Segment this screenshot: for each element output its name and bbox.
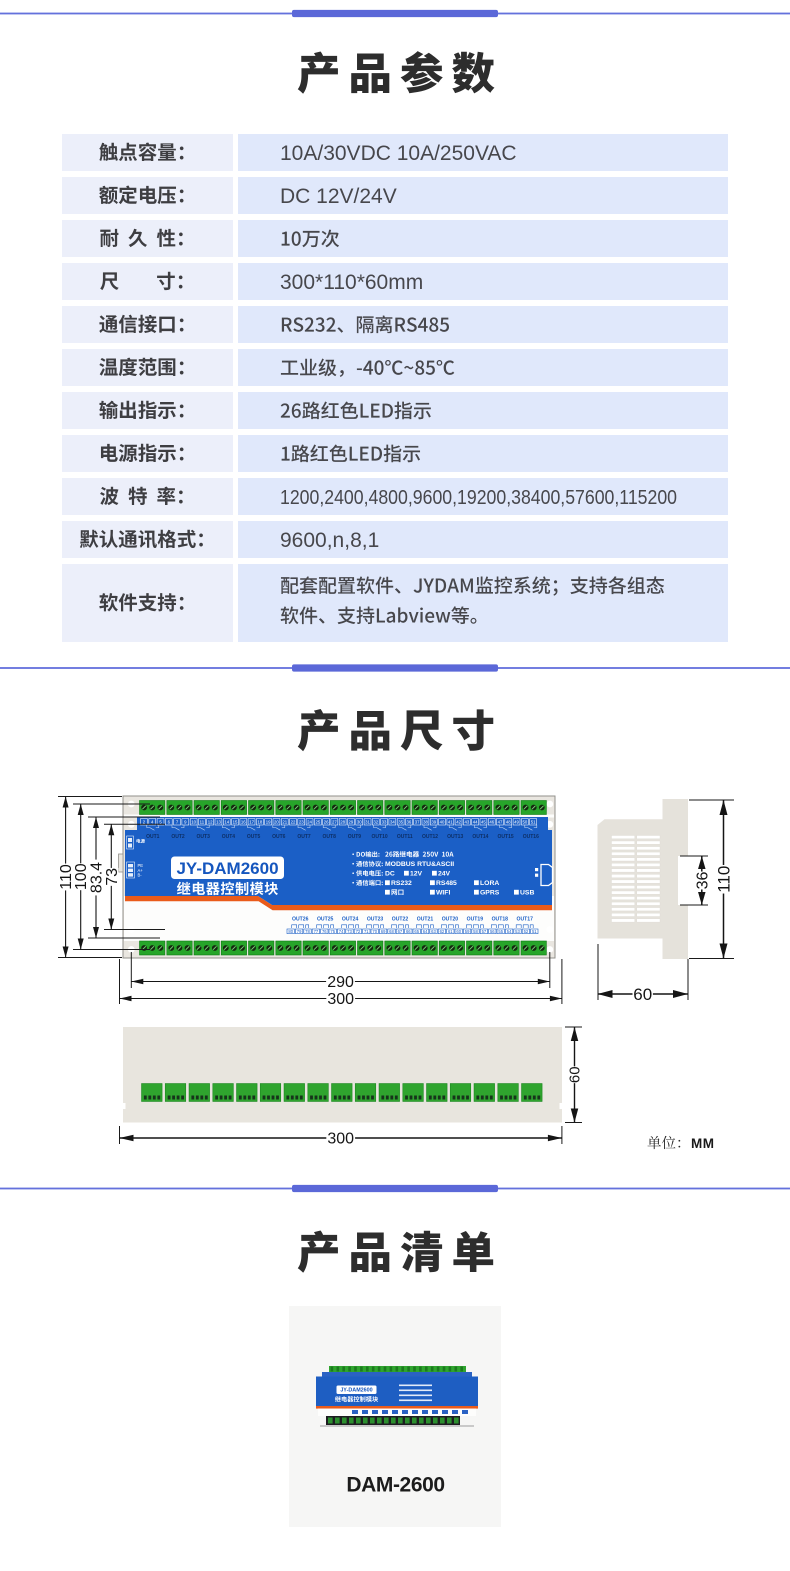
svg-text:40: 40 — [440, 820, 445, 825]
svg-text:13: 13 — [216, 820, 221, 825]
svg-text:OUT26: OUT26 — [292, 917, 309, 923]
svg-text:OUT20: OUT20 — [442, 917, 459, 923]
svg-text:OUT10: OUT10 — [372, 834, 388, 840]
svg-text:OUT17: OUT17 — [517, 917, 534, 923]
svg-text:OUT15: OUT15 — [498, 834, 514, 840]
svg-text:OUT6: OUT6 — [272, 834, 286, 840]
svg-text:58: 58 — [473, 929, 478, 934]
svg-text:67: 67 — [398, 929, 403, 934]
svg-text:OUT1: OUT1 — [146, 834, 160, 840]
svg-text:30: 30 — [357, 820, 362, 825]
svg-text:36: 36 — [407, 820, 412, 825]
svg-text:37: 37 — [415, 820, 420, 825]
svg-text:OUT21: OUT21 — [417, 917, 434, 923]
svg-text:77: 77 — [314, 929, 319, 934]
svg-text:DC: DC — [385, 871, 395, 878]
svg-text:300*110*60mm: 300*110*60mm — [280, 271, 423, 294]
svg-text:60: 60 — [567, 1066, 584, 1083]
svg-text:72: 72 — [356, 929, 361, 934]
svg-text:OUT23: OUT23 — [367, 917, 384, 923]
svg-text:OUT22: OUT22 — [392, 917, 409, 923]
svg-text:54: 54 — [507, 929, 512, 934]
svg-text:OUT12: OUT12 — [422, 834, 438, 840]
svg-text:61: 61 — [448, 929, 453, 934]
svg-text:47: 47 — [498, 820, 503, 825]
svg-text:OUT5: OUT5 — [247, 834, 261, 840]
svg-text:1200,2400,4800,9600,19200,3840: 1200,2400,4800,9600,19200,38400,57600,11… — [280, 487, 677, 509]
svg-text:43: 43 — [464, 820, 469, 825]
svg-text:44: 44 — [473, 820, 478, 825]
svg-text:B-: B- — [138, 872, 143, 877]
svg-text:OUT25: OUT25 — [317, 917, 334, 923]
svg-text:73: 73 — [347, 929, 352, 934]
svg-text:46: 46 — [489, 820, 494, 825]
svg-text:55: 55 — [498, 929, 503, 934]
svg-text:50: 50 — [522, 820, 527, 825]
svg-text:OUT16: OUT16 — [523, 834, 539, 840]
svg-text:63: 63 — [431, 929, 436, 934]
svg-text:45: 45 — [481, 820, 486, 825]
svg-text:OUT3: OUT3 — [197, 834, 211, 840]
svg-text:59: 59 — [465, 929, 470, 934]
svg-text:10A/30VDC 10A/250VAC: 10A/30VDC 10A/250VAC — [280, 142, 517, 165]
svg-text:32: 32 — [373, 820, 378, 825]
svg-text:33: 33 — [382, 820, 387, 825]
svg-text:OUT4: OUT4 — [222, 834, 236, 840]
svg-text:75: 75 — [330, 929, 335, 934]
svg-text:11: 11 — [200, 820, 205, 825]
svg-text:23: 23 — [299, 820, 304, 825]
svg-text:25: 25 — [315, 820, 320, 825]
svg-text:RS232: RS232 — [391, 880, 412, 887]
svg-text:64: 64 — [423, 929, 428, 934]
svg-text:29: 29 — [349, 820, 354, 825]
svg-text:OUT7: OUT7 — [297, 834, 311, 840]
svg-text:10: 10 — [191, 820, 196, 825]
svg-text:JY-DAM2600: JY-DAM2600 — [176, 859, 278, 878]
svg-text:9600,n,8,1: 9600,n,8,1 — [280, 529, 379, 552]
svg-text:38: 38 — [423, 820, 428, 825]
svg-text:15: 15 — [233, 820, 238, 825]
svg-text:20: 20 — [274, 820, 279, 825]
svg-text:68: 68 — [389, 929, 394, 934]
svg-text:OUT18: OUT18 — [492, 917, 509, 923]
svg-text:49: 49 — [514, 820, 519, 825]
svg-text:28: 28 — [340, 820, 345, 825]
svg-text:USB: USB — [520, 890, 534, 897]
svg-text:OUT13: OUT13 — [447, 834, 463, 840]
svg-text:GPRS: GPRS — [480, 890, 500, 897]
svg-text:52: 52 — [524, 929, 529, 934]
svg-text:70: 70 — [372, 929, 377, 934]
svg-text:MM: MM — [691, 1136, 715, 1151]
svg-text:78: 78 — [305, 929, 310, 934]
svg-text:51: 51 — [531, 820, 536, 825]
svg-text:65: 65 — [414, 929, 419, 934]
svg-text:53: 53 — [515, 929, 520, 934]
svg-text:48: 48 — [506, 820, 511, 825]
svg-text:OUT19: OUT19 — [467, 917, 484, 923]
svg-text:31: 31 — [365, 820, 370, 825]
svg-text:56: 56 — [490, 929, 495, 934]
svg-text:69: 69 — [381, 929, 386, 934]
svg-text:290: 290 — [327, 974, 354, 991]
svg-text:34: 34 — [390, 820, 395, 825]
svg-text:DAM-2600: DAM-2600 — [346, 1474, 444, 1497]
svg-text:MODBUS RTU&ASCII: MODBUS RTU&ASCII — [385, 861, 454, 868]
svg-text:110: 110 — [714, 866, 733, 893]
svg-text:66: 66 — [406, 929, 411, 934]
svg-text:62: 62 — [440, 929, 445, 934]
svg-text:79: 79 — [297, 929, 302, 934]
svg-text:35: 35 — [398, 820, 403, 825]
svg-text:OUT9: OUT9 — [348, 834, 362, 840]
svg-text:WIFI: WIFI — [436, 890, 450, 897]
svg-text:OUT11: OUT11 — [397, 834, 413, 840]
svg-text:19: 19 — [266, 820, 271, 825]
svg-text:OUT24: OUT24 — [342, 917, 359, 923]
svg-text:24: 24 — [307, 820, 312, 825]
svg-text:18: 18 — [257, 820, 262, 825]
svg-text:21: 21 — [282, 820, 287, 825]
svg-text:51: 51 — [532, 929, 537, 934]
svg-text:DC 12V/24V: DC 12V/24V — [280, 185, 397, 208]
svg-text:300: 300 — [327, 1130, 354, 1147]
svg-text:JY-DAM2600: JY-DAM2600 — [340, 1388, 372, 1394]
svg-text:LORA: LORA — [480, 880, 499, 887]
svg-text:60: 60 — [633, 985, 652, 1004]
svg-text:12V: 12V — [410, 871, 423, 878]
svg-text:42: 42 — [456, 820, 461, 825]
svg-text:22: 22 — [291, 820, 296, 825]
svg-text:73: 73 — [104, 868, 121, 886]
svg-text:26: 26 — [324, 820, 329, 825]
svg-text:74: 74 — [339, 929, 344, 934]
svg-text:16: 16 — [241, 820, 246, 825]
svg-text:71: 71 — [364, 929, 369, 934]
svg-text:OUT14: OUT14 — [472, 834, 488, 840]
svg-text:39: 39 — [431, 820, 436, 825]
svg-text:41: 41 — [448, 820, 453, 825]
svg-text:OUT2: OUT2 — [171, 834, 185, 840]
svg-text:24V: 24V — [438, 871, 451, 878]
svg-text:80: 80 — [288, 929, 293, 934]
svg-text:14: 14 — [224, 820, 229, 825]
svg-text:17: 17 — [249, 820, 254, 825]
svg-text:300: 300 — [327, 991, 354, 1008]
svg-text:36: 36 — [694, 872, 711, 890]
svg-text:12: 12 — [208, 820, 213, 825]
svg-text:57: 57 — [482, 929, 487, 934]
svg-text:OUT8: OUT8 — [323, 834, 337, 840]
svg-text:27: 27 — [332, 820, 337, 825]
svg-text:RS485: RS485 — [436, 880, 457, 887]
svg-text:60: 60 — [456, 929, 461, 934]
svg-text:76: 76 — [322, 929, 327, 934]
